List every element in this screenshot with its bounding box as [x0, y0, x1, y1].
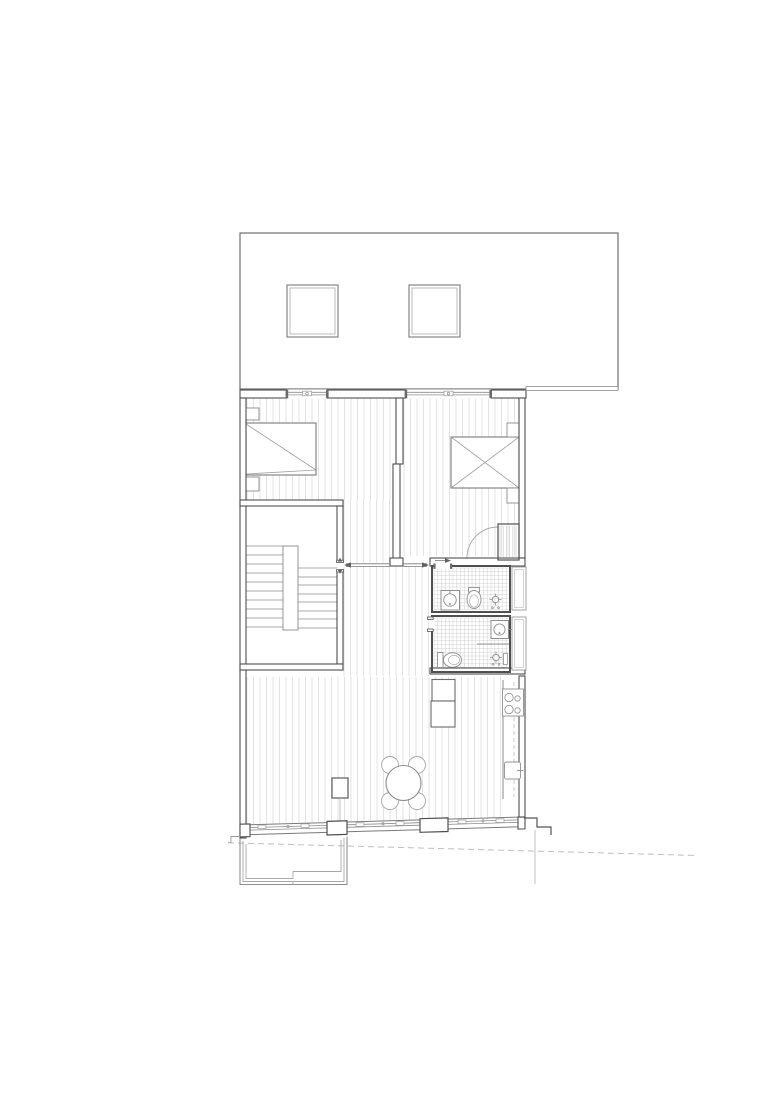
window-operator — [496, 819, 504, 823]
facade-pier — [420, 818, 448, 832]
toilet — [444, 653, 462, 667]
sliding-door-arrow-left — [344, 562, 351, 567]
column — [332, 778, 348, 798]
nightstand — [507, 488, 519, 503]
nightstand — [507, 423, 519, 437]
door-jamb — [428, 617, 434, 619]
facade-end-cap — [240, 824, 250, 837]
dining-table — [386, 766, 421, 801]
washbasin-drain — [449, 603, 451, 605]
roof-line-connector — [228, 837, 240, 843]
facade-window-frame — [250, 823, 327, 825]
wall-right-upper — [519, 398, 525, 558]
facade-window-frame — [448, 827, 518, 829]
shower-head — [492, 596, 498, 602]
wall-left — [240, 398, 246, 838]
roof-projection-dashed — [228, 843, 698, 856]
wall-stair-right — [337, 506, 343, 561]
duct — [512, 617, 526, 670]
facade-window-frame — [448, 817, 518, 819]
door-jamb — [450, 564, 452, 569]
window-2-jamb — [405, 390, 408, 398]
shower-valve — [503, 654, 507, 665]
toilet — [467, 591, 481, 609]
window-operator — [258, 825, 266, 829]
wall-stair-bottom — [240, 664, 343, 670]
door-jamb — [428, 629, 434, 631]
patio-wall-band — [526, 387, 618, 391]
patio-outline — [240, 233, 618, 389]
sliding-door-arrow-right — [422, 562, 429, 567]
kitchen-tall-unit — [432, 680, 455, 702]
window-1-jamb — [286, 390, 289, 398]
facade-step — [524, 818, 551, 835]
bathroom2-door-opening — [431, 620, 436, 630]
floor-plan-svg — [0, 0, 778, 1100]
toilet-tank — [438, 653, 444, 668]
wall-stair-right — [337, 571, 343, 664]
balcony-rail-inner — [246, 840, 341, 879]
nightstand — [246, 477, 259, 491]
facade-window-frame — [347, 830, 420, 832]
shower-foot — [498, 663, 500, 665]
wall-partition — [393, 464, 400, 560]
window-operator — [301, 824, 309, 828]
balcony-rail-outer — [240, 837, 347, 885]
wall-bedroom1-bottom — [240, 500, 343, 506]
facade-window-frame — [250, 832, 327, 834]
nightstand — [246, 408, 259, 420]
door-jamb — [433, 564, 435, 569]
wall-partition — [396, 398, 403, 464]
window-operator — [356, 823, 364, 827]
wall-partition-stub — [390, 558, 403, 566]
stair-stringer — [283, 546, 298, 630]
shower-foot — [492, 663, 494, 665]
closet-door-arc — [467, 527, 498, 558]
window-operator — [458, 820, 466, 824]
floor-plan-page — [0, 0, 778, 1100]
kitchen-tall-unit — [431, 701, 455, 727]
facade-end-cap — [518, 817, 525, 829]
shower-foot — [492, 607, 494, 609]
window-2-jamb — [489, 390, 492, 398]
washbasin-drain — [499, 632, 501, 634]
facade-pier — [327, 821, 347, 835]
window-operator — [396, 822, 404, 826]
duct — [512, 567, 526, 610]
window-1-jamb — [326, 390, 329, 398]
bathroom1-door-opening — [435, 564, 450, 569]
